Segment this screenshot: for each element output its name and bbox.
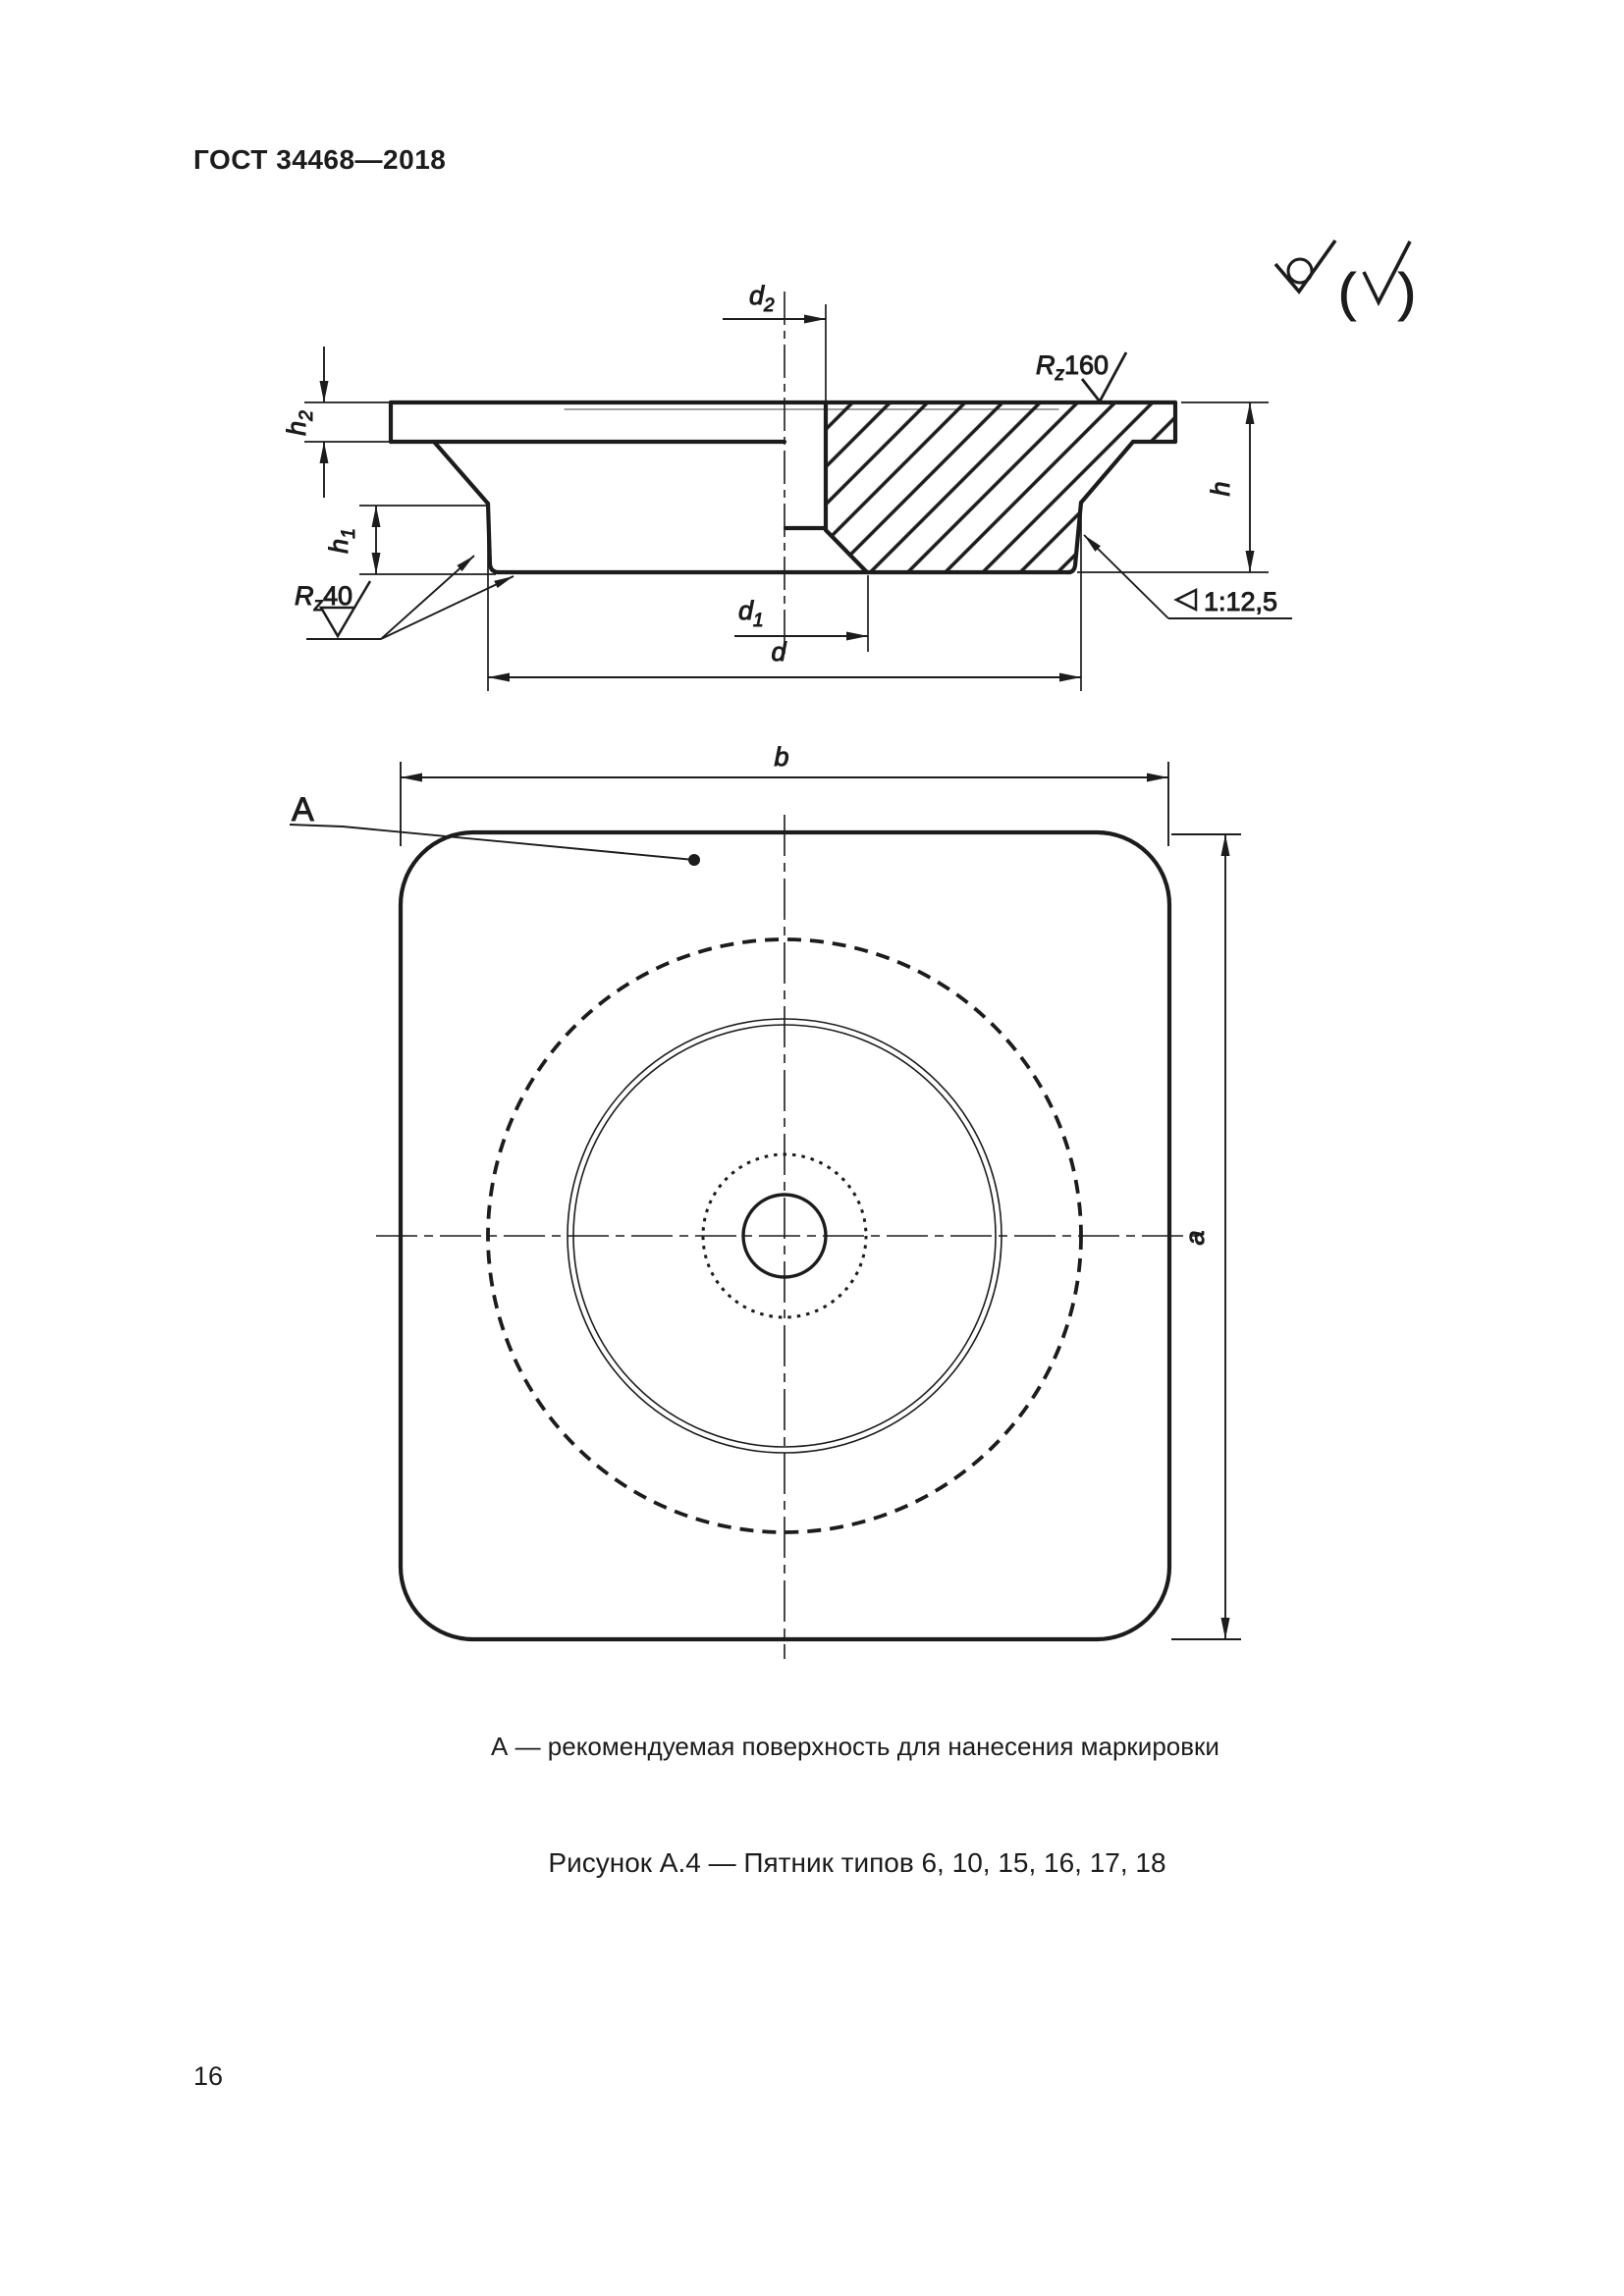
dim-a-label: a: [1180, 1230, 1210, 1245]
surface-finish-check-icon: [1275, 240, 1335, 292]
taper-icon: [1176, 590, 1196, 610]
marking-surface-label: A: [292, 791, 314, 828]
leader-dot: [688, 854, 700, 866]
dim-d1-label: d1: [738, 596, 764, 631]
surface-finish-icon: [321, 608, 354, 636]
section-hatch-area: [826, 404, 1175, 572]
paren-close: ): [1398, 263, 1416, 322]
taper-label: 1:12,5: [1204, 587, 1277, 616]
dim-d2-label: d2: [749, 281, 775, 316]
dimension-lines: [324, 319, 1250, 677]
cross-section-view: d2 d1 d h h2 h1 1:12,5 Rz160 Rz40: [282, 281, 1292, 691]
dim-b-label: b: [774, 742, 788, 772]
dim-d-label: d: [771, 637, 786, 667]
dim-h-label: h: [1206, 481, 1235, 496]
general-surface-finish-note: ( ): [1275, 240, 1416, 322]
figure-title: Рисунок А.4 — Пятник типов 6, 10, 15, 16…: [90, 1847, 1624, 1879]
dim-h2-label: h2: [282, 410, 317, 436]
top-view: A b a: [290, 742, 1241, 1659]
extension-lines: [304, 304, 1269, 691]
dim-h1-label: h1: [324, 528, 359, 554]
rz160-label: Rz160: [1036, 350, 1109, 385]
page-number: 16: [193, 2061, 223, 2092]
figure-note: А — рекомендуемая поверхность для нанесе…: [86, 1732, 1624, 1762]
paren-open: (: [1338, 263, 1356, 322]
rz40-label: Rz40: [295, 581, 352, 615]
technical-drawing: d2 d1 d h h2 h1 1:12,5 Rz160 Rz40: [0, 0, 1624, 2296]
arrowheads: [320, 315, 1255, 682]
